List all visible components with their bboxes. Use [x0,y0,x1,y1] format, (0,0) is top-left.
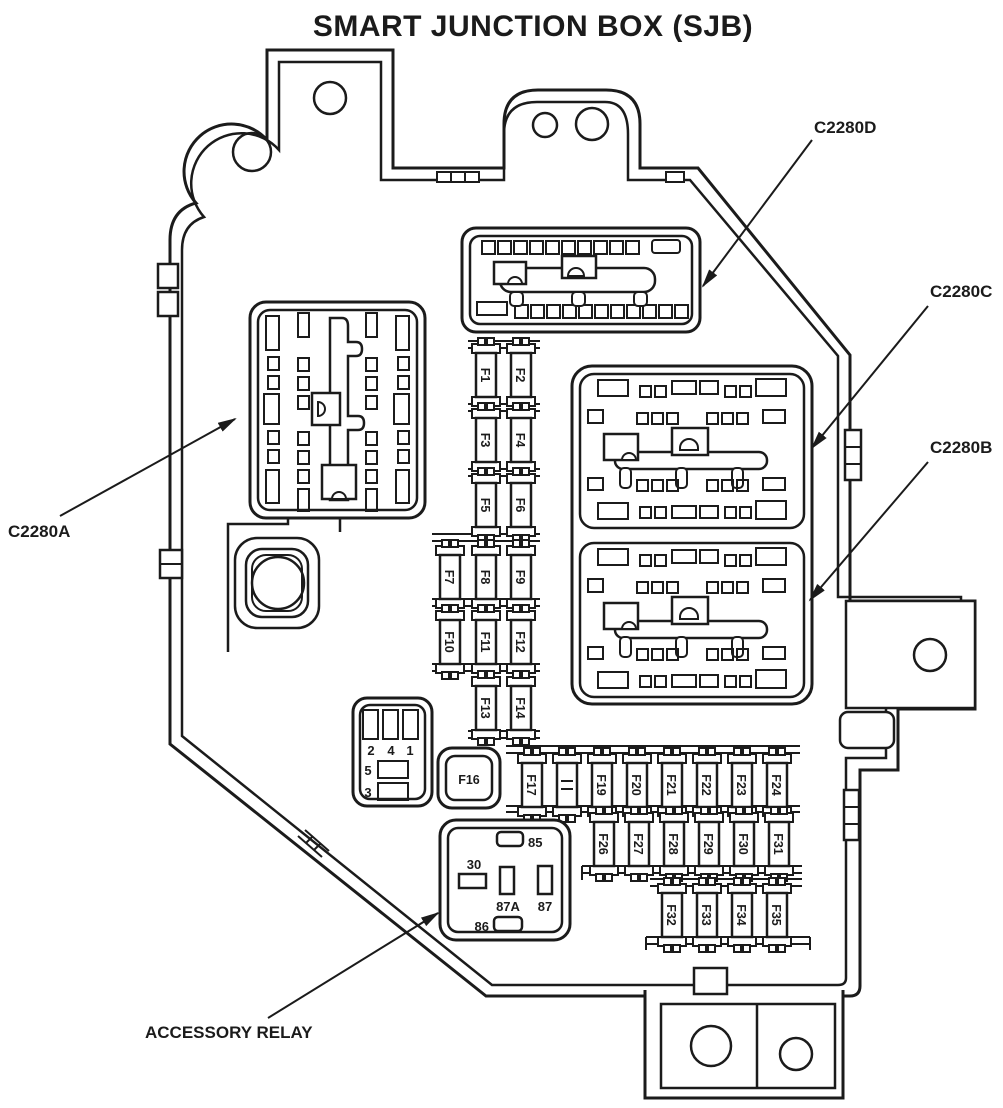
fuse-label-f24: F24 [769,774,783,796]
fuse-label-f35: F35 [769,904,783,926]
fuse-label-f14: F14 [513,697,527,719]
fuse-label-f9: F9 [513,570,527,585]
relay-pin-86-label: 86 [475,919,489,934]
edge-tab [158,292,178,316]
fuse-blank [553,748,581,822]
callout-c2280b: C2280B [930,438,992,457]
connector-c2280a [250,302,425,518]
fuse-label-f3: F3 [478,433,492,448]
edge-tab [158,264,178,288]
callout-arrow-c2280a [60,419,235,516]
edge-notch [666,172,684,182]
bottom-bracket [645,968,843,1098]
accessory-relay-socket: 85 30 87A 87 86 [440,820,570,940]
fuse-label-f30: F30 [736,833,750,855]
aux-pin-2-label: 2 [367,743,374,758]
right-mounting-box [840,601,975,748]
edge-tab [840,712,894,748]
callout-c2280c: C2280C [930,282,992,301]
mounting-hole [576,108,608,140]
fuse-label-f33: F33 [699,904,713,926]
fuse-label-f31: F31 [771,833,785,855]
fuse-bank-vertical: F1 F2 F3 F4 F5 F6 F7 F8 F9 F10 F11 F12 F… [436,338,535,745]
fuse-label-f21: F21 [664,774,678,796]
fuse-label-f34: F34 [734,904,748,926]
callout-arrow-c2280b [810,462,928,600]
fuse-label-f17: F17 [524,774,538,796]
connector-c2280d [462,228,700,332]
relay-pin-30-label: 30 [467,857,481,872]
fuse-label-f2: F2 [513,368,527,383]
fuse-label-f5: F5 [478,498,492,513]
mounting-hole [314,82,346,114]
connector-c2280b [580,543,804,697]
fuse-label-f28: F28 [666,833,680,855]
power-stud-tower [235,538,319,628]
callout-accessory-relay: ACCESSORY RELAY [145,1023,313,1042]
fuse-label-f13: F13 [478,697,492,719]
edge-notch [437,172,479,182]
fuse-label-f19: F19 [594,774,608,796]
aux-pin-3-label: 3 [364,785,371,800]
fuse-label-f6: F6 [513,498,527,513]
fuse-label-f23: F23 [734,774,748,796]
fuse-label-f32: F32 [664,904,678,926]
aux-pin-1-label: 1 [406,743,413,758]
aux-pin-5-label: 5 [364,763,371,778]
connector-c2280c-b-block [572,366,812,704]
mounting-hole [233,133,271,171]
fuse-label-f7: F7 [442,570,456,585]
fuse-label-f10: F10 [442,631,456,653]
callout-c2280a: C2280A [8,522,70,541]
aux-pin-4-label: 4 [387,743,395,758]
fuse-label-f29: F29 [701,833,715,855]
relay-pin-87-label: 87 [538,899,552,914]
fuse-label-f22: F22 [699,774,713,796]
callout-c2280d: C2280D [814,118,876,137]
aux-connector: 2 4 1 5 3 [353,698,432,806]
fuse-label-f8: F8 [478,570,492,585]
sjb-diagram: SMART JUNCTION BOX (SJB) [0,0,1003,1108]
page-title: SMART JUNCTION BOX (SJB) [313,10,753,43]
diagram-canvas: SMART JUNCTION BOX (SJB) [0,0,1003,1108]
fuse-label-f27: F27 [631,833,645,855]
connector-c2280c [580,374,804,528]
edge-tab [845,430,861,480]
fuse-label-f4: F4 [513,433,527,448]
fuse-label-f12: F12 [513,631,527,653]
fuse-label-f26: F26 [596,833,610,855]
relay-pin-85-label: 85 [528,835,542,850]
relay-pin-87a-label: 87A [496,899,520,914]
fuse-label-f20: F20 [629,774,643,796]
mounting-hole [533,113,557,137]
fuse-label-f11: F11 [478,632,492,653]
edge-tab [844,790,859,840]
bracket-tab [694,968,727,994]
fuse-f16-box: F16 [438,748,500,808]
fuse-label-f1: F1 [478,368,492,383]
callout-arrow-accessory-relay [268,913,438,1018]
fuse-label-f16: F16 [458,773,480,787]
